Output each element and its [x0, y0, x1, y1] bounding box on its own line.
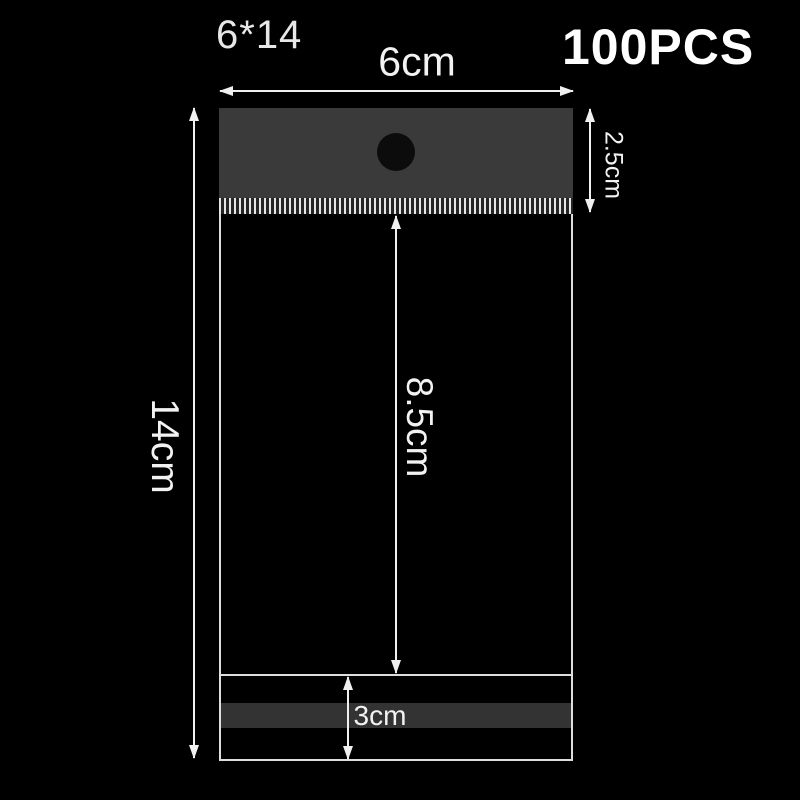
flap-height-dimension-arrow [347, 677, 349, 759]
width-dimension-label: 6cm [378, 39, 455, 86]
header-height-dimension-label: 2.5cm [599, 131, 628, 199]
product-dimension-diagram: 6*14 100PCS 6cm 14cm 2.5cm 8.5cm 3cm [0, 0, 800, 800]
product-code-label: 6*14 [216, 13, 302, 58]
body-height-dimension-label: 8.5cm [398, 377, 440, 478]
perforation-tear-line [219, 198, 573, 214]
header-height-dimension-arrow [589, 109, 591, 212]
height-dimension-label: 14cm [142, 398, 186, 493]
bag-header-flap [219, 108, 573, 198]
width-dimension-arrow [220, 90, 573, 92]
quantity-count-label: 100PCS [562, 18, 754, 76]
height-dimension-arrow [193, 108, 195, 758]
flap-height-dimension-label: 3cm [354, 700, 407, 732]
hang-hole-icon [377, 133, 415, 171]
flap-fold-line [219, 674, 573, 676]
body-height-dimension-arrow [395, 216, 397, 673]
